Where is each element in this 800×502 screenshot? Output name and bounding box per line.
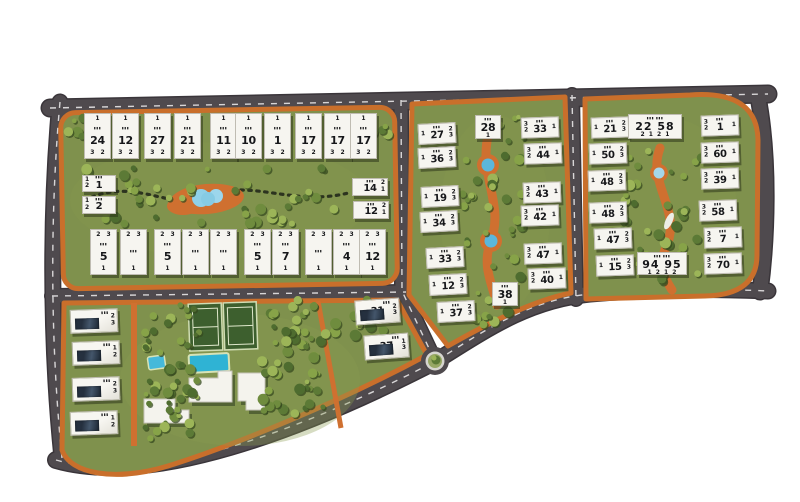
unit-count-label: 2 3 [619,173,624,187]
unit-count-label: 1 [735,233,739,240]
unit-count-label: 1 2 [111,415,116,429]
building-number: 37 [449,308,463,319]
windows-icon: ▮▮▮ [383,301,391,305]
unit-count-label: 1 3 [401,338,406,352]
building-marker-58: ▮▮▮583 21 [699,199,738,221]
building-number: 47 [606,236,620,246]
windows-icon: ▮▮▮ [334,127,342,130]
windows-icon: ▮▮▮ [103,379,111,383]
unit-count-label: 3 2 [704,119,709,133]
windows-icon: ▮▮▮ [94,127,102,130]
building-marker-21: 1▮▮▮213 2 [174,113,201,159]
windows-icon: ▮▮▮ [122,127,130,130]
unit-count-label: 3 2 [118,150,132,156]
building-face: ▮▮▮39 [713,171,727,186]
unit-count-label: 1 [101,266,105,272]
building-number: 5 [254,251,261,262]
building-number: 22 58 [635,121,674,132]
building-number: 60 [713,150,727,160]
unit-count-label: 3 2 [707,257,712,271]
building-marker-33: ▮▮▮3312 3 [425,246,464,269]
building-face: ▮▮▮37 [379,341,393,352]
windows-icon: ▮▮▮ [360,127,368,130]
building-marker-14: ▮▮▮142 1 [352,178,388,196]
building-number: 31 [370,306,384,317]
unit-count-label: 1 [552,123,556,130]
building-marker-1: ▮▮▮13 21 [701,114,740,136]
building-number: 21 [603,125,617,135]
unit-count-label: 3 2 [531,272,536,286]
unit-count-label: 3 2 [702,204,707,218]
windows-icon: ▮▮▮ [604,205,612,208]
unit-count-label: 3 2 [330,150,344,156]
unit-count-label: 1 [559,274,563,281]
building-face: ▮▮▮12 [441,277,455,292]
windows-icon: ▮▮▮ [392,336,400,340]
building-face: ▮▮▮1 [716,118,724,133]
building-marker-94-95: ▮▮▮ ▮▮▮94 951 2 1 2 [637,252,687,275]
unit-count-label: 1 [255,266,259,272]
unit-count-label: 2 3 [113,381,118,395]
unit-count-label: 2 3 [451,189,456,203]
building-marker-47: ▮▮▮473 21 [524,242,563,264]
unit-count-label: 3 2 [216,150,230,156]
unit-count-label: 3 2 [524,209,529,223]
building-marker-34: ▮▮▮3412 3 [419,210,458,233]
building-face: ▮▮▮15 [608,258,622,273]
unit-count-label: 1 [555,149,559,156]
unit-count-label: 3 2 [270,150,284,156]
unit-count-label: 1 [131,266,135,272]
building-number: 14 [363,184,376,194]
windows-icon: ▮▮▮ [305,127,313,130]
building-number: 17 [356,135,371,146]
building-face: ▮▮▮48 [600,173,614,188]
windows-icon: ▮▮▮ [101,311,109,315]
windows-icon: ▮▮▮ [245,127,253,130]
building-number: 12 [365,251,380,262]
unit-count-label: 1 2 [85,177,89,191]
building-marker-40: ▮▮▮403 21 [528,267,567,289]
building-marker-5: 2 3▮▮▮51 [154,229,181,275]
windows-icon: ▮▮▮ [366,180,374,183]
unit-count-label: 3 2 [704,172,709,186]
building-marker-12: ▮▮▮122 1 [353,201,389,219]
unit-count-label: 2 3 [620,146,625,160]
unit-count-label: 1 [486,133,490,139]
building-number: 17 [330,135,345,146]
building-marker-48: ▮▮▮4812 3 [589,201,628,223]
building-marker-39: ▮▮▮393 21 [701,167,740,189]
unit-count-label: 1 [335,116,339,122]
windows-icon: ▮▮▮ [254,243,262,246]
building-number: 27 [150,135,165,146]
unit-count-label: 2 3 [188,232,202,238]
unit-count-label: 1 [370,266,374,272]
building-face: ▮▮▮2 [95,198,103,213]
building-marker-15: ▮▮▮1512 3 [596,254,635,276]
building-number: 28 [481,122,496,133]
unit-count-label: 1 2 [85,198,89,212]
windows-icon: ▮▮▮ [539,246,547,249]
building-number: 58 [711,208,725,218]
windows-icon: ▮▮▮ [315,250,323,253]
building-number: 1 [717,123,724,133]
building-marker-24: 1▮▮▮243 2 [84,113,111,159]
building-face: ▮▮▮27 [430,126,444,141]
windows-icon: ▮▮▮ [611,258,619,261]
building-number: 37 [379,341,393,352]
unit-count-label: 3 2 [527,247,532,261]
building-marker: ▮▮▮1 2 [70,410,119,436]
siteplan-canvas: 1▮▮▮243 21▮▮▮123 21▮▮▮273 21▮▮▮213 21▮▮▮… [0,0,800,502]
unit-count-label: 1 [599,262,603,269]
building-marker-11: 1▮▮▮113 2 [210,113,237,159]
building-number: 94 95 [642,259,681,270]
unit-count-label: 2 3 [456,250,461,264]
building-number: 12 [118,135,133,146]
windows-icon: ▮▮▮ [536,120,544,123]
unit-count-label: 1 [503,300,507,306]
building-marker-7: ▮▮▮73 21 [704,226,743,248]
unit-count-label: 1 [421,155,426,162]
building-marker-2: ▮▮▮21 2 [82,196,116,214]
building-face: ▮▮▮44 [536,146,550,161]
unit-count-label: 2 3 [96,232,110,238]
building-face: ▮▮▮60 [713,145,727,160]
building-marker-19: ▮▮▮1912 3 [420,185,459,208]
unit-count-label: 2 3 [126,232,140,238]
windows-icon: ▮▮▮ [101,413,109,417]
unit-count-label: 1 [552,211,556,218]
building-face: ▮▮▮31 [370,306,384,317]
building-marker-38: ▮▮▮381 [492,282,518,306]
building-face: ▮▮▮42 [533,208,547,223]
windows-icon: ▮▮▮ [719,230,727,233]
windows-icon: ▮▮▮ [184,127,192,130]
building-face: ▮▮▮19 [433,189,447,204]
building-number: 19 [433,193,447,204]
unit-count-label: 2 3 [160,232,174,238]
windows-icon: ▮▮▮ [192,250,200,253]
windows-icon: ▮▮▮ [95,176,103,179]
building-marker: ▮▮▮1 2 [72,340,121,366]
building-number: 48 [601,210,615,220]
unit-count-label: 1 [732,174,736,181]
building-number: 27 [430,130,444,141]
unit-count-label: 3 2 [524,121,529,135]
unit-count-label: 2 1 [381,180,385,194]
building-marker-17: 1▮▮▮173 2 [295,113,322,159]
unit-count-label: 1 [165,266,169,272]
windows-icon: ▮▮▮ [716,171,724,174]
building-marker-50: ▮▮▮5012 3 [589,142,628,164]
building-marker-33: ▮▮▮333 21 [521,116,560,138]
building-face: ▮▮▮21 [603,120,617,135]
unit-count-label: 1 [732,121,736,128]
unit-count-label: 2 1 2 1 [641,132,670,138]
building-number: 4 [343,251,350,262]
building-marker-21: ▮▮▮2112 3 [591,116,630,138]
unit-count-label: 2 3 [625,231,630,245]
unit-count-label: 2 3 [448,126,453,140]
unit-count-label: 1 [246,116,250,122]
building-number: 42 [533,213,547,223]
building-marker-60: ▮▮▮603 21 [701,141,740,163]
unit-count-label: 1 [594,124,598,131]
building-number: 12 [441,281,455,292]
unit-count-label: 1 [429,255,434,262]
unit-count-label: 1 [440,309,445,316]
building-marker-7: 2 3▮▮▮71 [272,229,299,275]
unit-count-label: 1 [123,116,127,122]
building-number: 12 [364,207,377,217]
unit-count-label: 1 [316,266,320,272]
unit-count-label: 3 2 [180,150,194,156]
unit-count-label: 1 2 [113,345,118,359]
windows-icon: ▮▮▮ [536,208,544,211]
windows-icon: ▮▮▮ [716,145,724,148]
unit-count-label: 1 [732,148,736,155]
windows-icon: ▮▮▮ [484,118,492,121]
windows-icon: ▮▮▮ [501,285,509,288]
building-number: 11 [216,135,231,146]
unit-count-label: 2 3 [448,150,453,164]
windows-icon: ▮▮▮ [95,198,103,201]
building-number: 70 [716,261,730,271]
building-marker-4: 2 3▮▮▮41 [333,229,360,275]
windows-icon: ▮▮▮ [609,231,617,234]
building-marker-44: ▮▮▮443 21 [524,142,563,164]
unit-count-label: 2 3 [339,232,353,238]
unit-count-label: 2 3 [467,304,472,318]
building-face: ▮▮▮36 [430,150,444,165]
building-number: 38 [498,289,513,300]
building-marker-43: ▮▮▮433 21 [523,181,562,203]
building-marker-37: ▮▮▮3712 3 [436,300,475,323]
building-marker-17: 1▮▮▮173 2 [324,113,351,159]
building-marker-28: ▮▮▮281 [475,115,501,139]
unit-count-label: 3 2 [704,146,709,160]
windows-icon: ▮▮▮ [343,243,351,246]
building-number: 47 [536,251,550,261]
windows-icon: ▮▮▮ [103,343,111,347]
windows-icon: ▮▮▮ [274,127,282,130]
unit-count-label: 1 [735,259,739,266]
building-number: 43 [535,190,549,200]
building-number: 34 [432,218,446,229]
windows-icon: ▮▮▮ [719,256,727,259]
unit-count-label: 1 2 1 2 [648,270,677,276]
unit-count-label: 1 [344,266,348,272]
unit-count-label: 1 [275,116,279,122]
building-face: ▮▮▮47 [606,231,620,246]
unit-count-label: 1 [95,116,99,122]
building-number: 50 [601,151,615,161]
unit-count-label: 3 2 [527,147,532,161]
building-number: 1 [274,135,281,146]
unit-count-label: 1 [185,116,189,122]
unit-count-label: 1 [221,266,225,272]
unit-count-label: 2 1 [382,203,386,217]
building-number: 48 [600,178,614,188]
building-marker-27: ▮▮▮2712 3 [417,122,456,145]
unit-count-label: 2 3 [311,232,325,238]
building-face: ▮▮▮7 [719,230,727,245]
building-face: ▮▮▮12 [364,203,377,218]
building-marker-22-58: ▮▮▮ ▮▮▮22 582 1 2 1 [628,114,682,139]
building-number: 33 [438,254,452,265]
windows-icon: ▮▮▮ ▮▮▮ [654,255,671,258]
unit-count-label: 3 2 [707,231,712,245]
building-face: ▮▮▮34 [432,214,446,229]
building-number: 7 [720,235,727,245]
building-marker-70: ▮▮▮703 21 [704,252,743,274]
building-marker-17: 1▮▮▮173 2 [350,113,377,159]
building-marker-12: 2 3▮▮▮121 [359,229,386,275]
windows-icon: ▮▮▮ [714,203,722,206]
unit-count-label: 3 2 [526,186,531,200]
unit-count-label: 1 [424,194,429,201]
unit-count-label: 2 3 [216,232,230,238]
unit-count-label: 1 [592,209,596,216]
unit-count-label: 1 [730,206,734,213]
windows-icon: ▮▮▮ [538,185,546,188]
building-marker-31: ▮▮▮312 3 [354,297,401,325]
building-marker-10: 1▮▮▮103 2 [235,113,262,159]
unit-count-label: 3 2 [301,150,315,156]
building-face: ▮▮▮33 [533,120,547,135]
windows-icon: ▮▮▮ [606,120,614,123]
building-marker-1: 1▮▮▮13 2 [264,113,291,159]
building-number: 10 [241,135,256,146]
unit-count-label: 2 3 [365,232,379,238]
unit-count-label: 2 3 [278,232,292,238]
building-number: 7 [282,251,289,262]
windows-icon: ▮▮▮ [282,243,290,246]
building-face: ▮▮▮50 [601,146,615,161]
unit-count-label: 2 3 [250,232,264,238]
building-number: 39 [713,176,727,186]
windows-icon: ▮▮▮ [539,146,547,149]
windows-icon: ▮▮▮ [100,243,108,246]
unit-count-label: 1 [283,266,287,272]
building-number: 5 [164,251,171,262]
building-number: 2 [96,202,103,212]
unit-count-label: 1 [555,249,559,256]
building-number: 5 [100,251,107,262]
building-markers-layer: 1▮▮▮243 21▮▮▮123 21▮▮▮273 21▮▮▮213 21▮▮▮… [0,0,800,502]
unit-count-label: 1 [155,116,159,122]
unit-count-label: 2 3 [450,214,455,228]
unit-count-label: 1 [421,131,426,138]
windows-icon: ▮▮▮ [369,243,377,246]
windows-icon: ▮▮▮ [130,250,138,253]
unit-count-label: 2 3 [620,205,625,219]
windows-icon: ▮▮▮ [154,127,162,130]
building-marker: 2 3▮▮▮1 [305,229,332,275]
building-number: 15 [608,263,622,273]
building-marker: ▮▮▮2 3 [70,308,119,334]
unit-count-label: 1 [221,116,225,122]
building-number: 33 [533,125,547,135]
windows-icon: ▮▮▮ [603,173,611,176]
building-face: ▮▮▮33 [438,250,452,265]
building-marker-36: ▮▮▮3612 3 [417,146,456,169]
windows-icon: ▮▮▮ [367,203,375,206]
unit-count-label: 1 [306,116,310,122]
building-marker-47: ▮▮▮4712 3 [594,227,633,249]
building-number: 44 [536,151,550,161]
building-marker-27: 1▮▮▮273 2 [144,113,171,159]
unit-count-label: 3 2 [150,150,164,156]
building-face: ▮▮▮70 [716,256,730,271]
unit-count-label: 3 2 [90,150,104,156]
windows-icon: ▮▮▮ [220,250,228,253]
building-number: 24 [90,135,105,146]
unit-count-label: 1 [597,235,601,242]
building-face: ▮▮▮37 [449,304,463,319]
building-face: ▮▮▮1 [95,176,103,191]
building-marker-48: ▮▮▮4812 3 [588,169,627,191]
building-marker: ▮▮▮2 3 [72,376,121,402]
building-marker: 2 3▮▮▮1 [120,229,147,275]
unit-count-label: 1 [554,188,558,195]
building-marker-12: 1▮▮▮123 2 [112,113,139,159]
building-number: 36 [430,154,444,165]
building-face: ▮▮▮58 [711,203,725,218]
building-marker: 2 3▮▮▮1 [182,229,209,275]
windows-icon: ▮▮▮ [543,271,551,274]
building-number: 40 [540,276,554,286]
windows-icon: ▮▮▮ [220,127,228,130]
unit-count-label: 1 [361,116,365,122]
building-marker-1: ▮▮▮11 2 [82,175,116,192]
unit-count-label: 3 2 [356,150,370,156]
building-face: ▮▮▮40 [540,271,554,286]
windows-icon: ▮▮▮ [164,243,172,246]
building-marker-37: ▮▮▮371 3 [363,332,410,360]
unit-count-label: 1 [592,150,596,157]
windows-icon: ▮▮▮ ▮▮▮ [647,117,664,120]
windows-icon: ▮▮▮ [604,146,612,149]
unit-count-label: 3 2 [241,150,255,156]
unit-count-label: 1 [423,219,428,226]
unit-count-label: 2 3 [392,303,397,317]
building-face: ▮▮▮48 [601,205,615,220]
windows-icon: ▮▮▮ [716,118,724,121]
unit-count-label: 2 3 [627,258,632,272]
building-marker-12: ▮▮▮1212 3 [428,273,467,296]
building-face: ▮▮▮43 [535,185,549,200]
building-marker-5: 2 3▮▮▮51 [90,229,117,275]
unit-count-label: 1 [591,177,595,184]
unit-count-label: 1 [432,282,437,289]
building-face: ▮▮▮14 [363,180,376,195]
building-number: 1 [96,181,103,191]
building-marker-5: 2 3▮▮▮51 [244,229,271,275]
building-face: ▮▮▮47 [536,246,550,261]
unit-count-label: 2 3 [459,277,464,291]
building-marker: 2 3▮▮▮1 [210,229,237,275]
unit-count-label: 2 3 [622,120,627,134]
unit-count-label: 1 [193,266,197,272]
unit-count-label: 2 3 [111,313,116,327]
building-marker-42: ▮▮▮423 21 [521,204,560,226]
building-number: 21 [180,135,195,146]
building-number: 17 [301,135,316,146]
